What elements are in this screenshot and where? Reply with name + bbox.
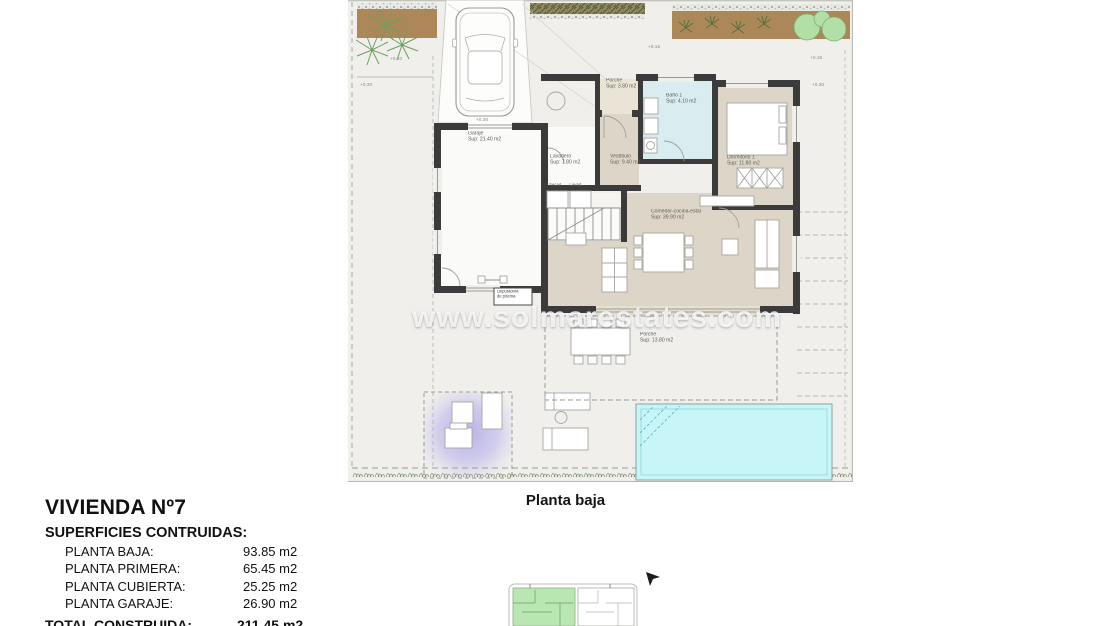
swimming-pool	[636, 404, 832, 480]
level-label: +0.30	[812, 83, 824, 88]
level-label: +0.15	[810, 56, 822, 61]
level-label: +0.30	[476, 118, 488, 123]
plan-sheet: Garaje Sup: 21.40 m2 Porche Sup: 3.80 m2…	[0, 0, 1110, 626]
surface-row: PLANTA GARAJE: 26.90 m2	[65, 596, 355, 611]
surface-row: PLANTA PRIMERA: 65.45 m2	[65, 561, 355, 576]
pergola-lounge	[424, 392, 512, 478]
room-label-vestibulo: Vestíbulo Sup: 9.40 m2	[610, 154, 640, 166]
title-block: VIVIENDA Nº7 SUPERFICIES CONTRUIDAS: PLA…	[45, 496, 355, 626]
room-label-garaje: Garaje Sup: 21.40 m2	[468, 131, 501, 143]
room-label-lavadero: Lavadero Sup: 7.80 m2	[550, 154, 580, 166]
room-label-dormitorio1: Dormitorio 1 Sup: 11.80 m2	[727, 155, 760, 167]
surface-total-row: TOTAL CONSTRUIDA: 211.45 m2	[45, 617, 355, 626]
car-top-view	[453, 8, 518, 116]
room-label-bano1: Baño 1 Sup: 4.10 m2	[666, 93, 696, 105]
level-label: +0.40	[390, 57, 402, 62]
room-label-comedor: Comedor-cocina-estar Sup: 39.90 m2	[651, 209, 701, 221]
level-label: +0.30	[360, 83, 372, 88]
dwelling-title: VIVIENDA Nº7	[45, 496, 355, 520]
plan-caption: Planta baja	[468, 492, 663, 509]
surface-row: PLANTA CUBIERTA: 25.25 m2	[65, 579, 355, 594]
laundry-labels: Secad. Lavad.	[549, 183, 588, 187]
cursor-arrow-icon	[646, 572, 660, 586]
surfaces-subtitle: SUPERFICIES CONTRUIDAS:	[45, 525, 355, 541]
watermark: www.solmarestates.com	[412, 301, 802, 335]
room-label-porche-entrada: Porche Sup: 3.80 m2	[606, 78, 636, 90]
level-label: +0.15	[648, 45, 660, 50]
pool-filter-label: Depuradora de piscina	[497, 290, 519, 299]
surface-row: PLANTA BAJA: 93.85 m2	[65, 544, 355, 559]
key-plan	[509, 584, 637, 626]
